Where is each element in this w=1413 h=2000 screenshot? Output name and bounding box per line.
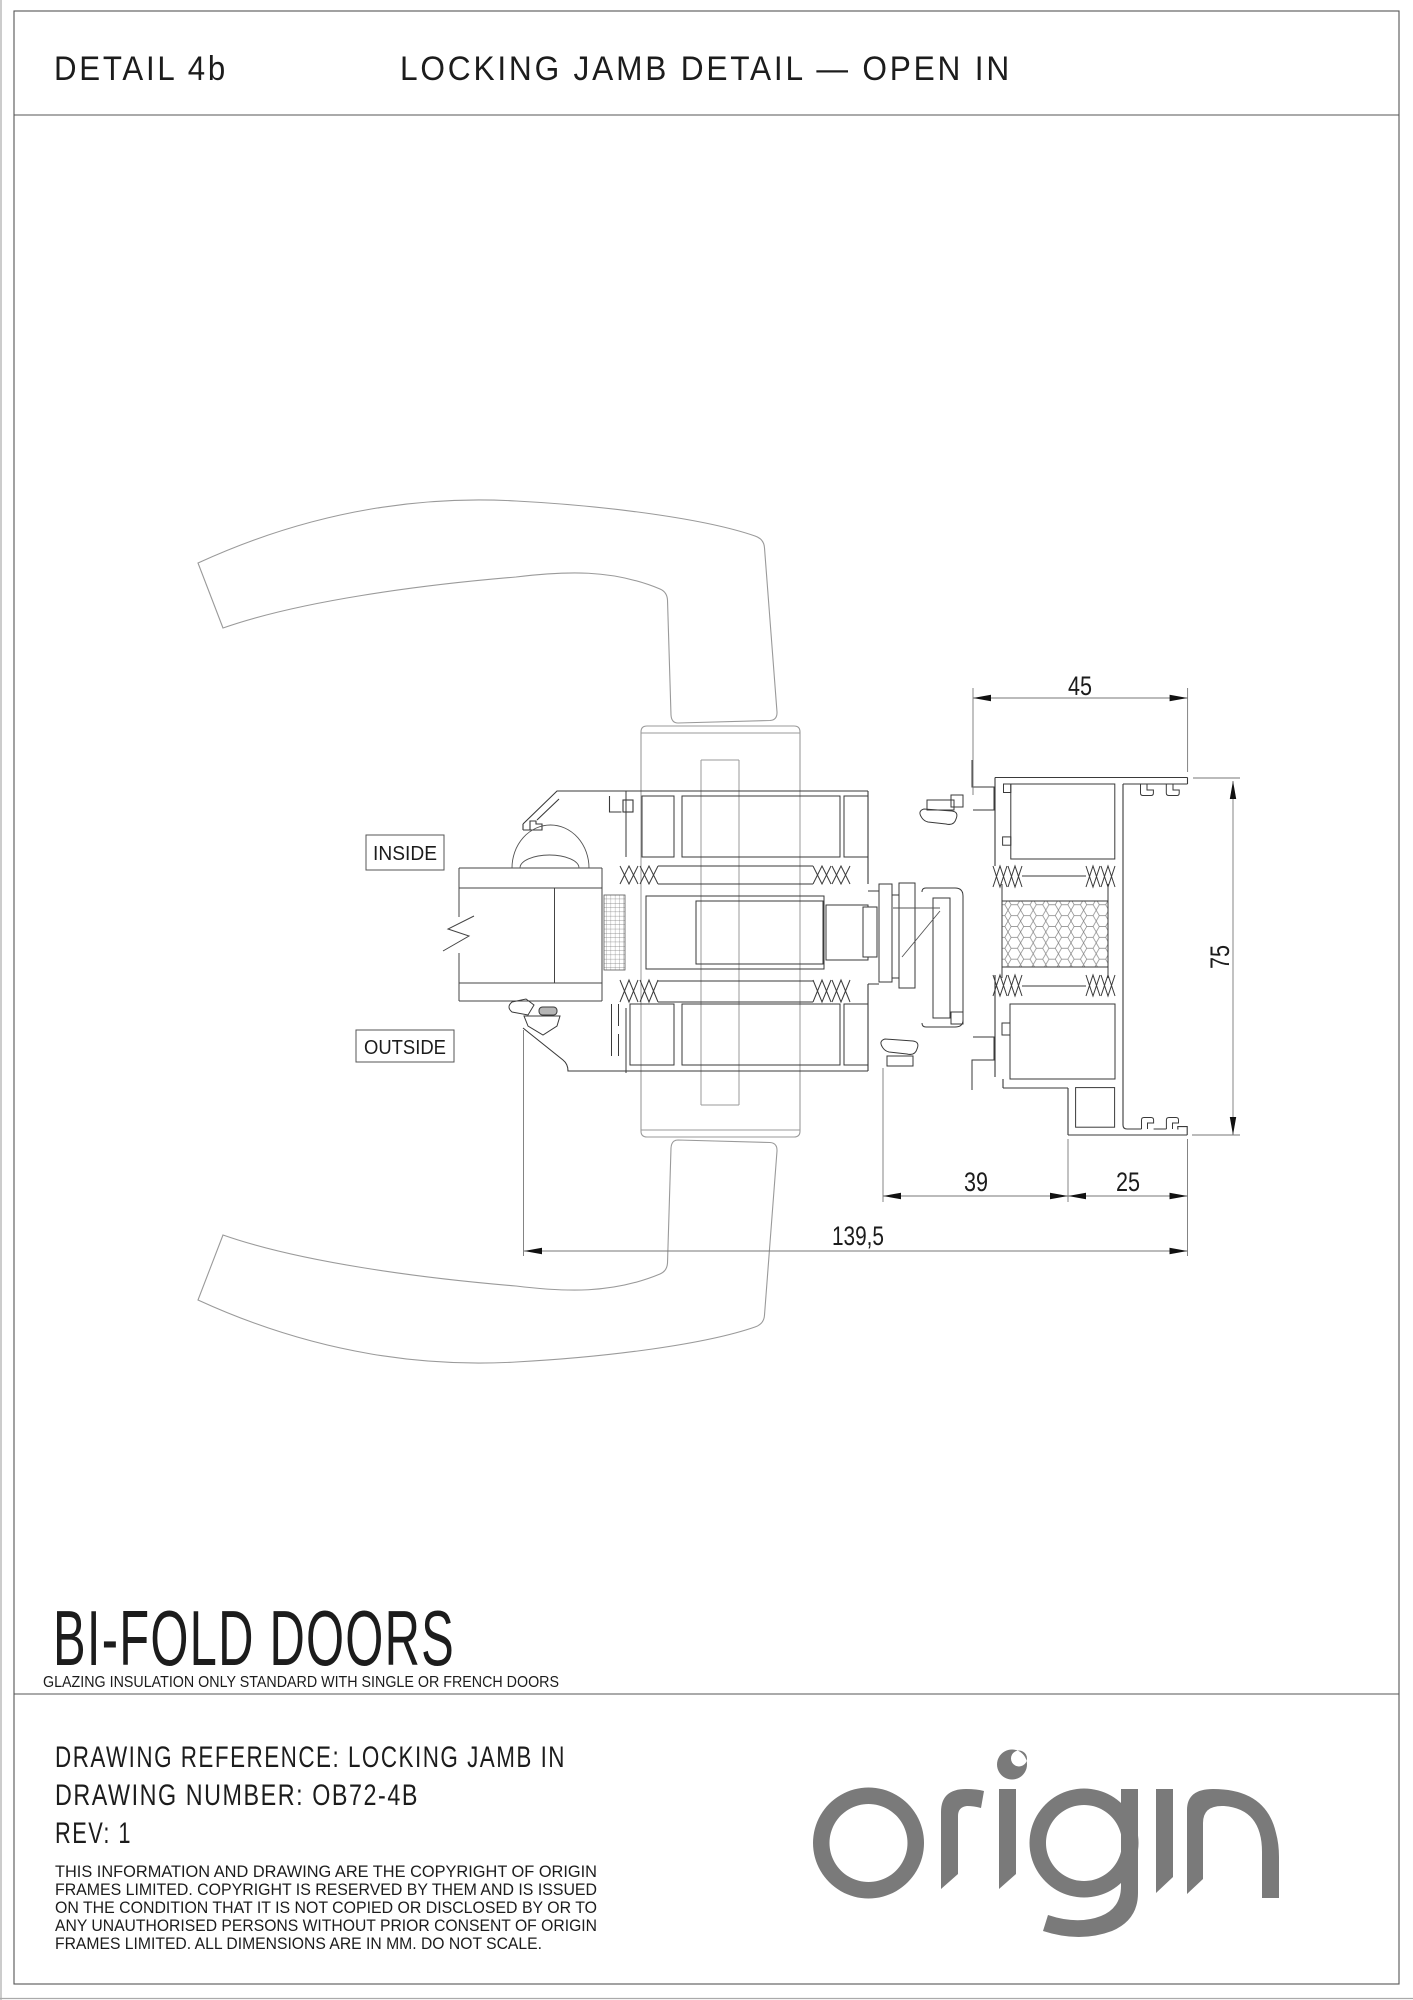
svg-text:39: 39 bbox=[964, 1167, 988, 1197]
svg-text:FRAMES LIMITED. COPYRIGHT IS R: FRAMES LIMITED. COPYRIGHT IS RESERVED BY… bbox=[55, 1881, 597, 1899]
svg-text:THIS INFORMATION AND DRAWING A: THIS INFORMATION AND DRAWING ARE THE COP… bbox=[55, 1863, 597, 1881]
svg-text:DRAWING REFERENCE: LOCKING JAM: DRAWING REFERENCE: LOCKING JAMB IN bbox=[55, 1741, 566, 1774]
svg-text:45: 45 bbox=[1068, 671, 1092, 701]
svg-text:BI-FOLD DOORS: BI-FOLD DOORS bbox=[53, 1594, 455, 1682]
svg-text:OUTSIDE: OUTSIDE bbox=[364, 1037, 446, 1059]
svg-text:FRAMES LIMITED. ALL DIMENSIONS: FRAMES LIMITED. ALL DIMENSIONS ARE IN MM… bbox=[55, 1935, 542, 1953]
svg-text:ON THE CONDITION THAT IT IS NO: ON THE CONDITION THAT IT IS NOT COPIED O… bbox=[55, 1899, 597, 1917]
svg-text:75: 75 bbox=[1205, 945, 1235, 969]
svg-text:ANY UNAUTHORISED PERSONS WITHO: ANY UNAUTHORISED PERSONS WITHOUT PRIOR C… bbox=[55, 1917, 597, 1935]
svg-text:GLAZING INSULATION ONLY STANDA: GLAZING INSULATION ONLY STANDARD WITH SI… bbox=[43, 1674, 559, 1691]
svg-text:DETAIL 4b: DETAIL 4b bbox=[54, 50, 228, 88]
svg-text:139,5: 139,5 bbox=[832, 1221, 884, 1251]
svg-text:REV: 1: REV: 1 bbox=[55, 1817, 132, 1850]
svg-text:25: 25 bbox=[1116, 1167, 1140, 1197]
svg-text:DRAWING NUMBER: OB72-4B: DRAWING NUMBER: OB72-4B bbox=[55, 1779, 419, 1812]
svg-text:LOCKING JAMB DETAIL — OPEN IN: LOCKING JAMB DETAIL — OPEN IN bbox=[400, 50, 1012, 88]
svg-text:INSIDE: INSIDE bbox=[373, 843, 437, 865]
